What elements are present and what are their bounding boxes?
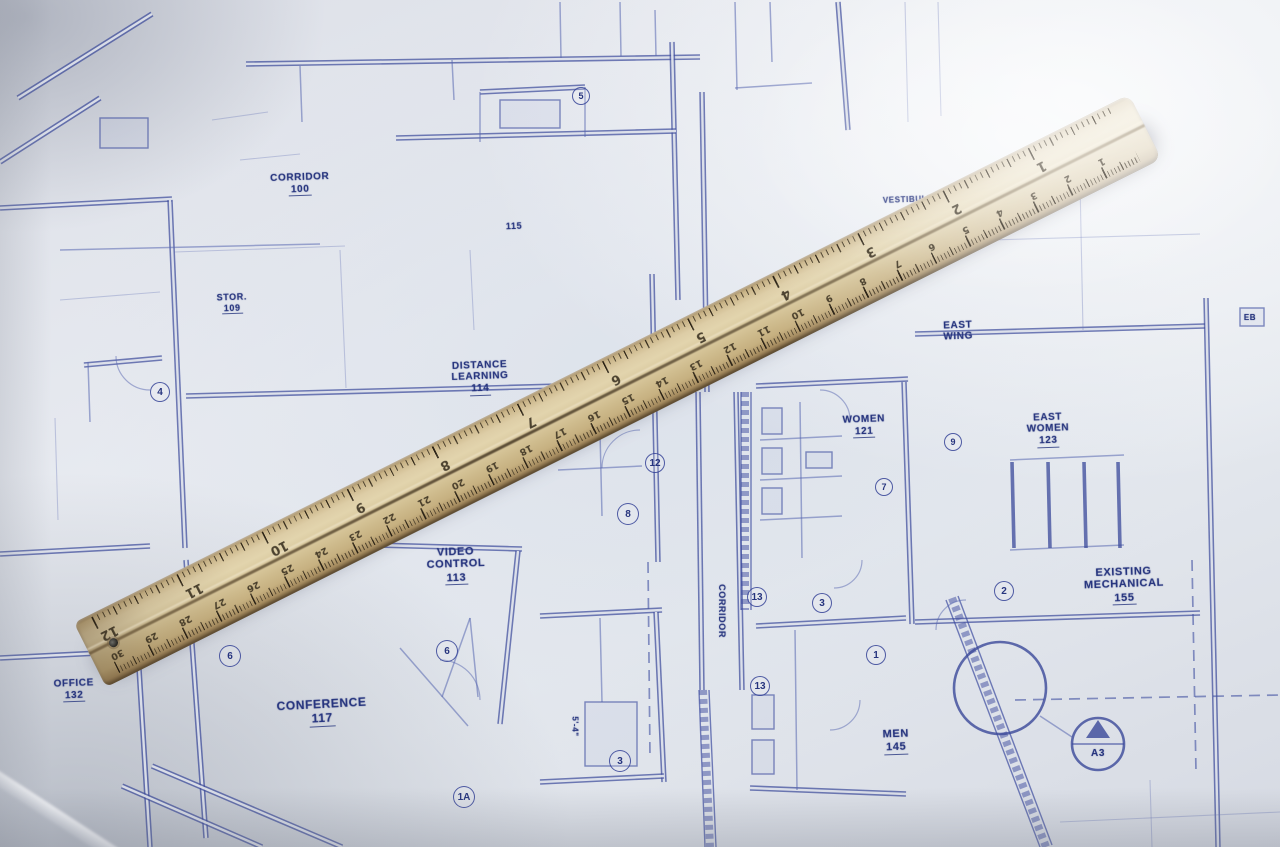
door-tag: 1 xyxy=(866,645,886,665)
room-number: 121 xyxy=(853,426,876,439)
room-label: CONFERENCE117 xyxy=(276,696,367,730)
room-number: 100 xyxy=(289,184,312,197)
room-number: 132 xyxy=(63,690,86,703)
room-label-line: STOR. xyxy=(216,291,247,302)
room-label: MEN145 xyxy=(882,728,909,756)
room-label-line: WOMEN xyxy=(1027,422,1070,435)
room-label: WOMEN121 xyxy=(842,413,885,439)
room-number: 113 xyxy=(444,571,468,585)
room-label: CORRIDOR100 xyxy=(270,171,330,197)
room-number: 109 xyxy=(222,303,243,315)
door-tag: 7 xyxy=(875,478,893,496)
room-label: A3 xyxy=(1091,748,1105,759)
door-tag: 6 xyxy=(219,645,241,667)
room-label-line: CONTROL xyxy=(426,557,485,571)
room-label: EB xyxy=(1244,314,1256,323)
room-label: CORRIDOR xyxy=(717,584,727,638)
room-label: 115 xyxy=(506,221,523,232)
door-tag: 9 xyxy=(944,433,962,451)
room-label: 5'-4" xyxy=(570,716,579,736)
room-label-line: OFFICE xyxy=(53,677,94,690)
room-label: EASTWOMEN123 xyxy=(1026,411,1070,448)
door-tag: 13 xyxy=(747,587,767,607)
room-label-line: MEN xyxy=(882,728,909,741)
door-tag: 8 xyxy=(617,503,639,525)
room-number: 114 xyxy=(469,383,491,396)
room-label-line: 5'-4" xyxy=(570,716,579,736)
room-number: 117 xyxy=(309,712,335,728)
room-label: STOR.109 xyxy=(216,291,247,314)
room-label-line: A3 xyxy=(1091,748,1105,759)
photo-scene: CORRIDOR100115VESTIBULESTOR.109DISTANCEL… xyxy=(0,0,1280,847)
room-label-line: WING xyxy=(943,331,973,343)
door-tag: 1A xyxy=(453,786,475,808)
door-tag: 6 xyxy=(436,640,458,662)
room-label: OFFICE132 xyxy=(53,677,94,703)
door-tag: 3 xyxy=(609,750,631,772)
room-number: 155 xyxy=(1112,591,1137,605)
room-label: EXISTINGMECHANICAL155 xyxy=(1083,565,1164,607)
room-label: EASTWING xyxy=(943,319,973,342)
room-label-line: 115 xyxy=(506,221,523,232)
room-label: DISTANCELEARNING114 xyxy=(451,359,509,397)
door-tag: 12 xyxy=(645,453,665,473)
door-tag: 13 xyxy=(750,676,770,696)
room-number: 123 xyxy=(1037,435,1060,448)
door-tag: 5 xyxy=(572,87,590,105)
room-number: 145 xyxy=(884,741,909,755)
room-label: VIDEOCONTROL113 xyxy=(426,545,486,586)
door-tag: 2 xyxy=(994,581,1014,601)
door-tag: 3 xyxy=(812,593,832,613)
room-label-line: CORRIDOR xyxy=(717,584,727,638)
room-label-line: WOMEN xyxy=(842,413,885,426)
room-label-line: EB xyxy=(1244,314,1256,323)
door-tag: 4 xyxy=(150,382,170,402)
